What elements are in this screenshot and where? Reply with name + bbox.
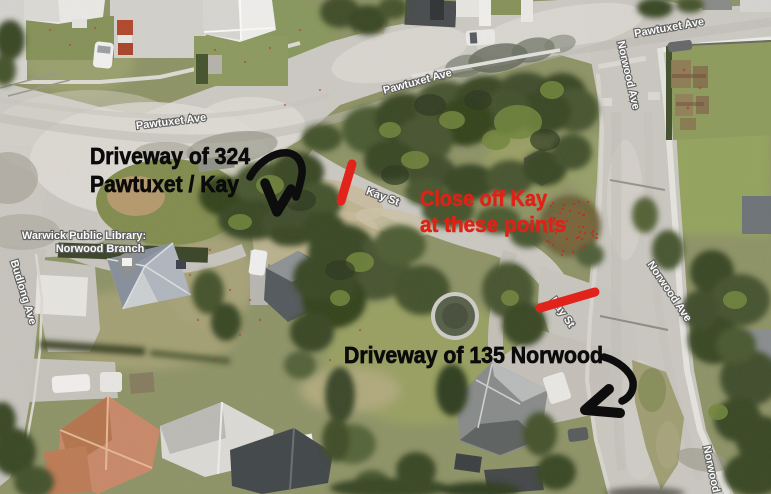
- svg-text:Pawtuxet / Kay: Pawtuxet / Kay: [90, 171, 239, 197]
- svg-text:Driveway of 324: Driveway of 324: [90, 143, 250, 169]
- svg-text:Driveway of 135 Norwood: Driveway of 135 Norwood: [344, 342, 603, 368]
- svg-text:at these points: at these points: [420, 212, 566, 237]
- svg-text:Close off Kay: Close off Kay: [420, 186, 548, 211]
